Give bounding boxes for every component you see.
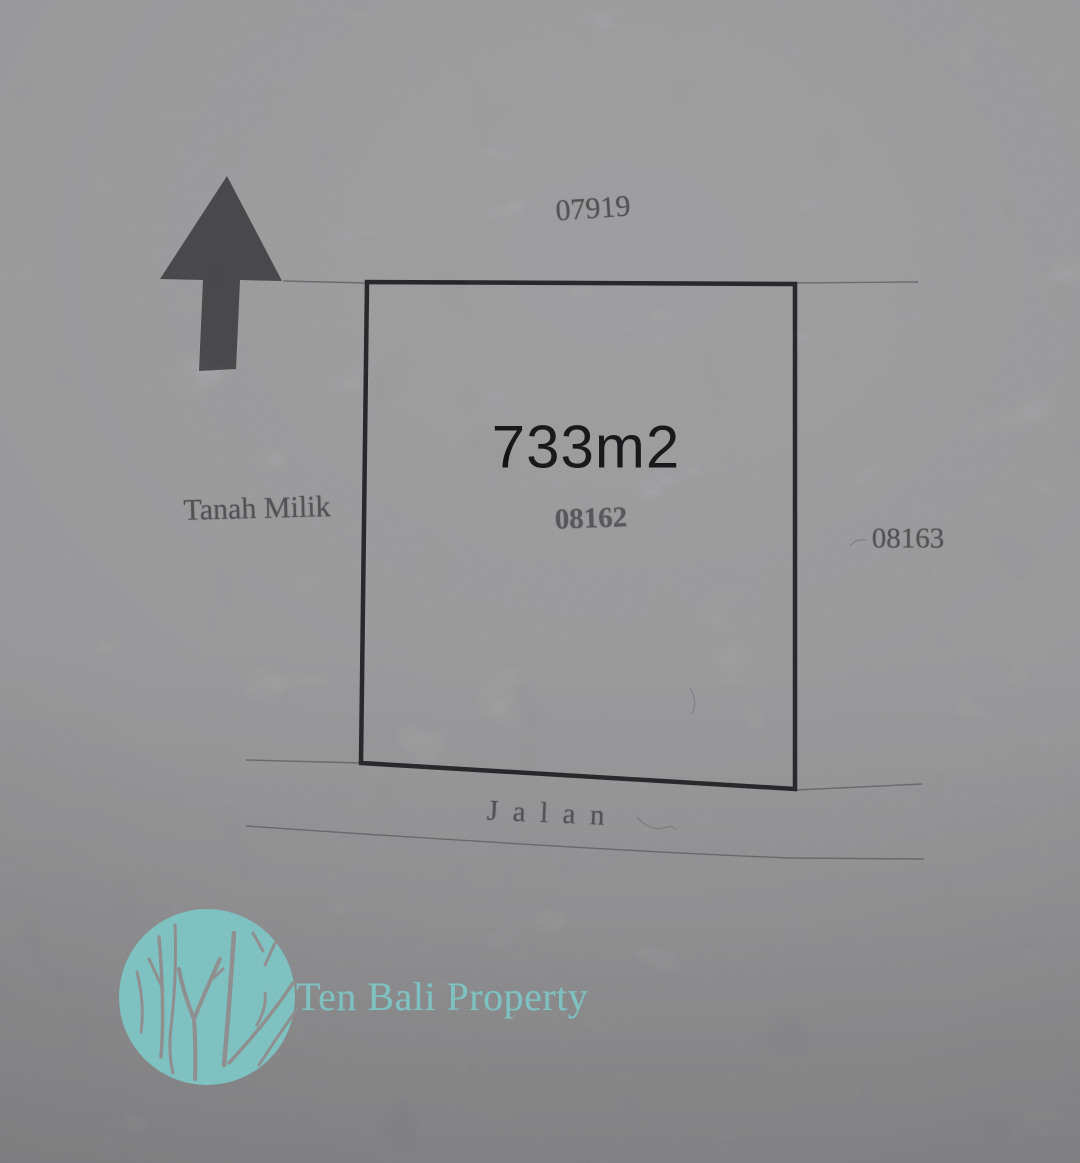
- label-parcel-area: 733m2: [492, 413, 680, 482]
- label-north-parcel-id: 07919: [554, 189, 631, 228]
- label-west-land-status: Tanah Milik: [183, 490, 331, 528]
- north-arrow-icon: [160, 176, 282, 371]
- brand-name: Ten Bali Property: [296, 973, 588, 1020]
- paper-crease-mark: [850, 540, 867, 546]
- top-extension-line-right: [795, 282, 918, 283]
- label-road: Jalan: [486, 795, 619, 834]
- paper-crease-mark: [637, 817, 676, 830]
- label-parcel-id: 08162: [554, 501, 628, 537]
- paper-crease-mark: [690, 688, 695, 714]
- land-survey-photo: 07919 733m2 08162 Tanah Milik 08163 Jala…: [0, 0, 1080, 1163]
- ten-bali-property-logo-icon: [117, 907, 297, 1087]
- road-extension-line-right: [796, 784, 922, 790]
- label-east-parcel-id: 08163: [872, 523, 945, 556]
- road-extension-line-left: [246, 760, 361, 763]
- top-extension-line-left: [283, 281, 367, 283]
